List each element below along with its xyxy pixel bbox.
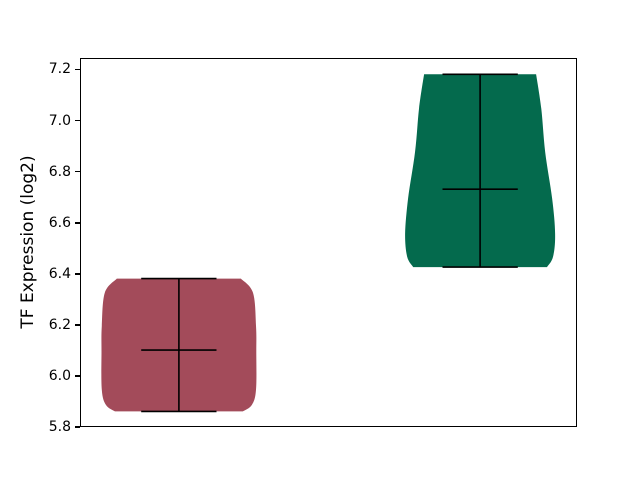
y-tick-label: 7.0 [11, 114, 71, 128]
y-axis-label: TF Expression (log2) [18, 155, 38, 328]
plot-area [80, 58, 577, 427]
y-tick-label: 5.8 [11, 420, 71, 434]
violin-plot-svg [81, 59, 575, 425]
y-tick-label: 6.4 [11, 267, 71, 281]
y-tick-label: 6.0 [11, 369, 71, 383]
y-tick-label: 6.6 [11, 216, 71, 230]
y-tick-label: 7.2 [11, 62, 71, 76]
figure: TF Expression (log2) 5.86.06.26.46.66.87… [0, 0, 640, 480]
y-tick-label: 6.8 [11, 165, 71, 179]
y-tick-label: 6.2 [11, 318, 71, 332]
